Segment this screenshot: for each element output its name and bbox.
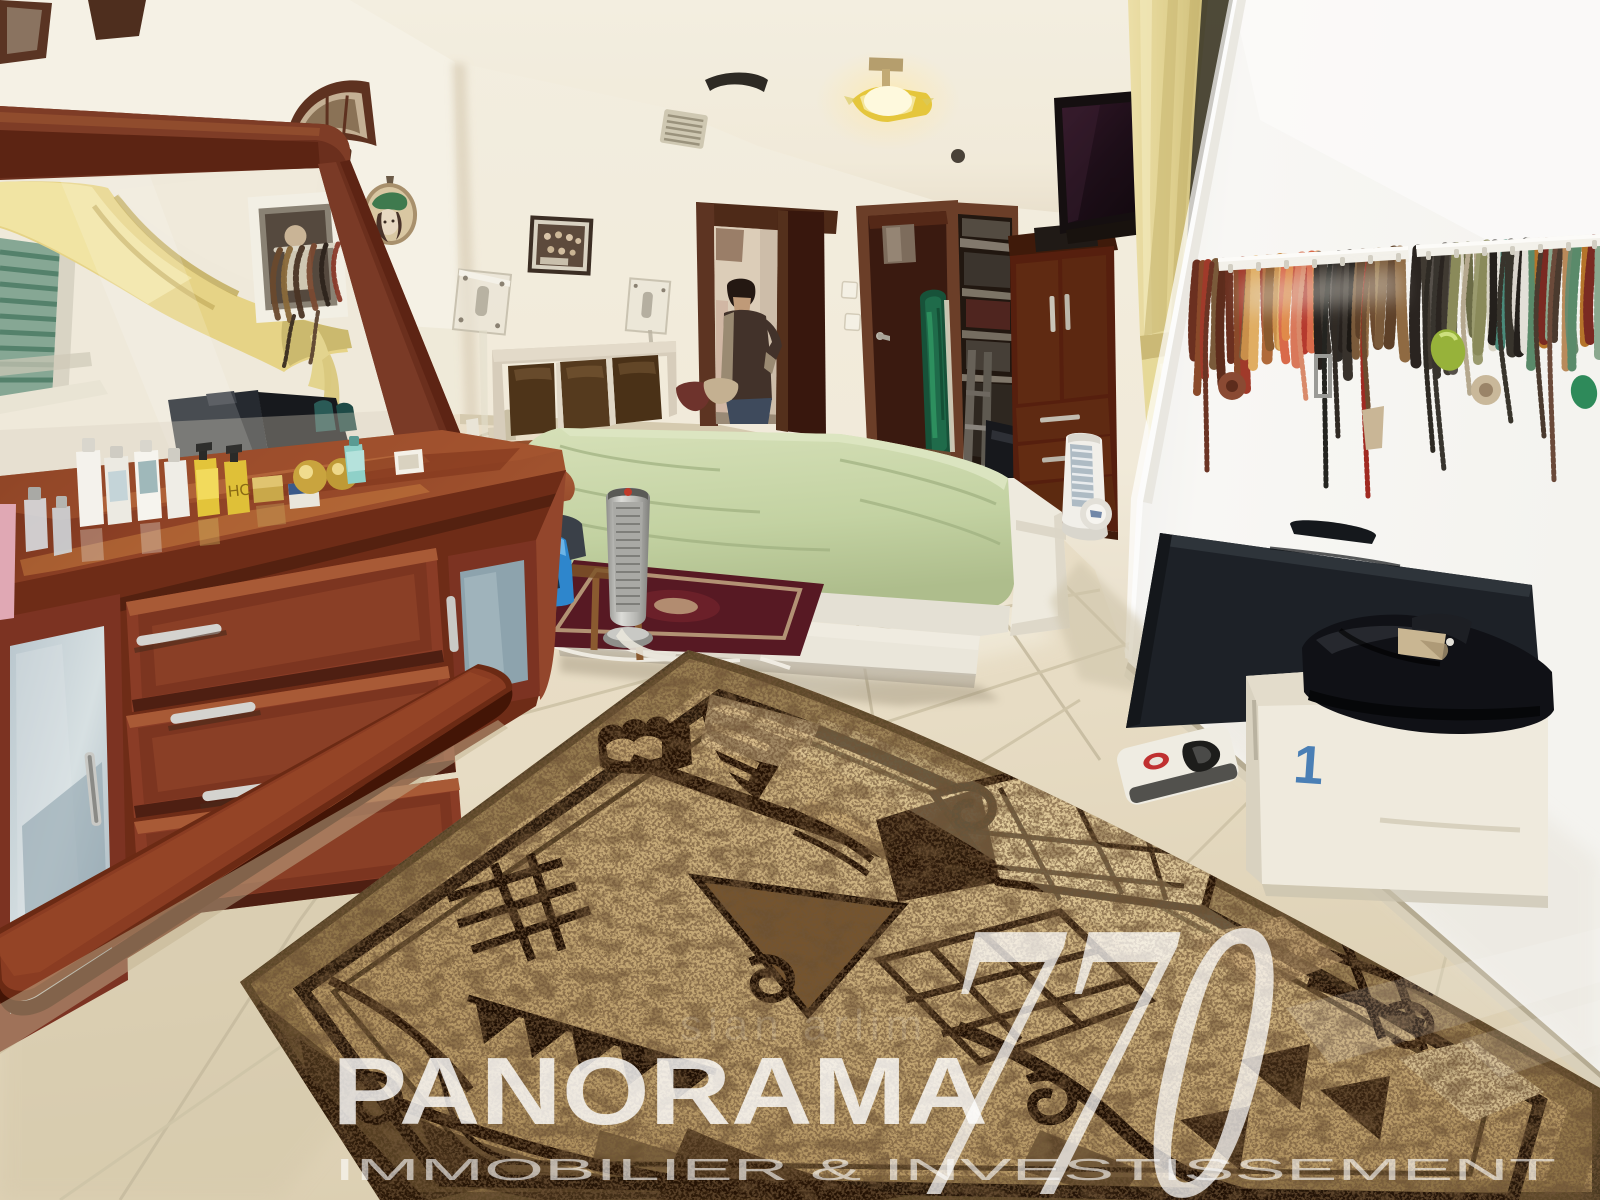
svg-text:HC: HC [227,481,252,500]
svg-text:PANORAMA: PANORAMA [332,1038,988,1145]
svg-text:IMMOBILIER & INVESTISSEMENT: IMMOBILIER & INVESTISSEMENT [334,1152,1556,1187]
svg-text:1: 1 [1292,734,1326,796]
